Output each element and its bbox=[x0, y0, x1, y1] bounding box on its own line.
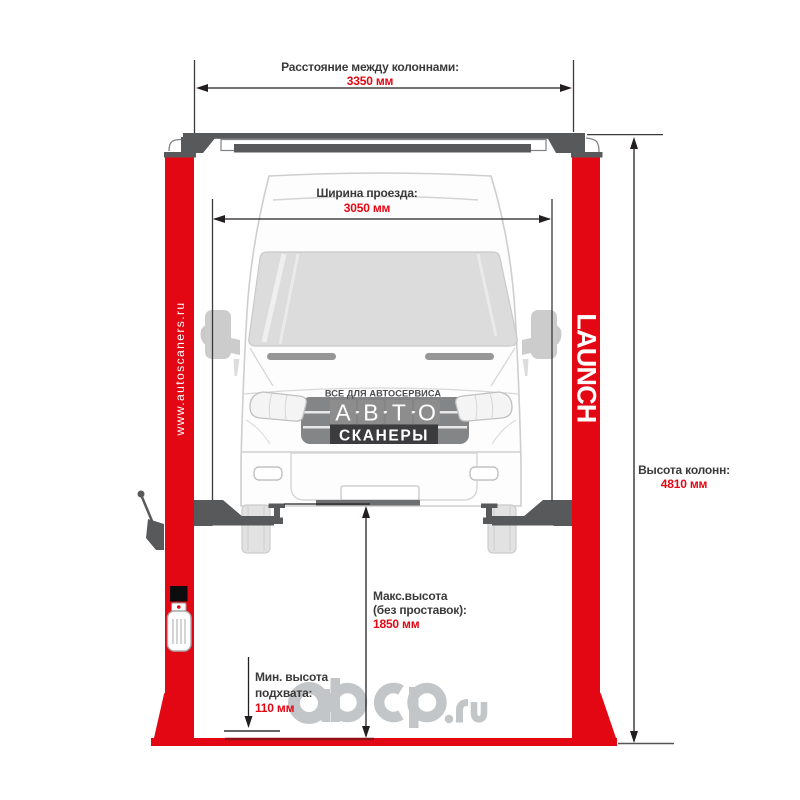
svg-text:Ширина проезда:: Ширина проезда: bbox=[316, 186, 417, 200]
svg-text:Расстояние между колоннами:: Расстояние между колоннами: bbox=[281, 60, 459, 74]
svg-text:В: В bbox=[363, 400, 378, 426]
svg-text:СКАНЕРЫ: СКАНЕРЫ bbox=[339, 427, 429, 444]
svg-text:Макс.высота: Макс.высота bbox=[373, 589, 448, 603]
svg-text:А: А bbox=[335, 400, 351, 426]
svg-text:www.autoscaners.ru: www.autoscaners.ru bbox=[173, 301, 187, 436]
svg-text:LAUNCH: LAUNCH bbox=[572, 313, 602, 422]
svg-text:Мин. высота: Мин. высота bbox=[255, 670, 328, 684]
svg-text:О: О bbox=[418, 400, 436, 426]
svg-text:(без проставок):: (без проставок): bbox=[373, 603, 467, 617]
svg-text:3050 мм: 3050 мм bbox=[344, 201, 391, 215]
svg-text:1850 мм: 1850 мм bbox=[373, 617, 420, 631]
svg-text:4810 мм: 4810 мм bbox=[661, 477, 708, 491]
svg-text:ВСЕ ДЛЯ АВТОСЕРВИСА: ВСЕ ДЛЯ АВТОСЕРВИСА bbox=[325, 389, 442, 399]
svg-text:Т: Т bbox=[392, 400, 406, 426]
svg-text:Высота колонн:: Высота колонн: bbox=[638, 463, 730, 477]
svg-text:110 мм: 110 мм bbox=[255, 701, 295, 715]
svg-text:3350 мм: 3350 мм bbox=[347, 74, 394, 88]
svg-text:подхвата:: подхвата: bbox=[255, 686, 312, 700]
